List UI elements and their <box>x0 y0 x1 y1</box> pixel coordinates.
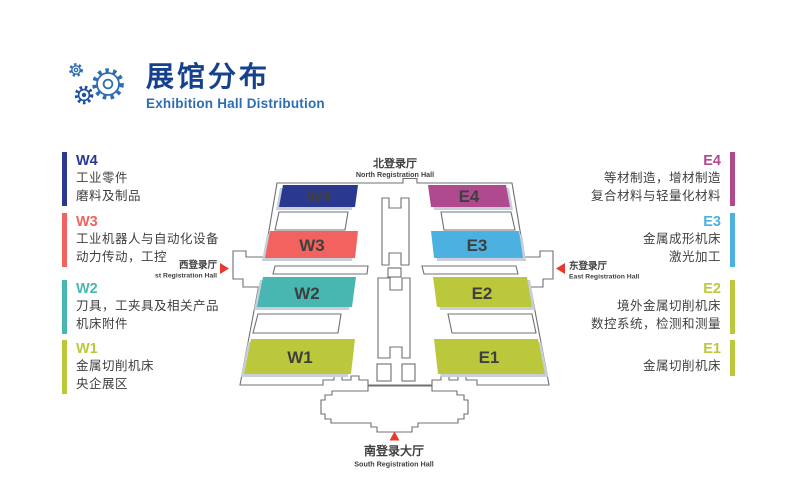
south-entrance-label-zh: 南登录大厅 <box>364 443 424 458</box>
legend-color-bar <box>62 280 67 334</box>
gear-small-icon <box>71 65 82 76</box>
south-pylon-east <box>402 364 415 381</box>
hall-label-w3: W3 <box>299 236 325 255</box>
legend-desc-line: 金属切削机床 <box>643 358 721 376</box>
gear-medium-icon <box>76 87 91 102</box>
hall-label-w4: W4 <box>306 187 332 206</box>
legend-color-bar <box>62 152 67 206</box>
hall-label-e3: E3 <box>467 236 488 255</box>
south-pylon-west <box>377 364 391 381</box>
unlabeled-hall <box>253 314 341 333</box>
legend-item-w4: W4 工业零件 磨料及制品 <box>62 152 141 206</box>
legend-desc-line: 金属切削机床 <box>76 358 154 376</box>
legend-desc-line: 金属成形机床 <box>643 231 721 249</box>
hall-label-e1: E1 <box>479 348 500 367</box>
north-entrance-label-zh: 北登录厅 <box>373 156 417 170</box>
east-entrance-label-zh: 东登录厅 <box>569 260 608 272</box>
page-header: 展馆分布 Exhibition Hall Distribution <box>146 60 325 111</box>
west-entrance-label-zh: 西登录厅 <box>179 259 218 271</box>
legend-desc-line: 磨料及制品 <box>76 188 141 206</box>
hall-label-w1: W1 <box>287 348 313 367</box>
hall-label-e2: E2 <box>472 284 493 303</box>
east-entrance-label-en: East Registration Hall <box>569 274 639 281</box>
page-subtitle: Exhibition Hall Distribution <box>146 96 325 111</box>
legend-code: E3 <box>703 213 721 231</box>
legend-desc-line: 工业零件 <box>76 170 141 188</box>
west-entrance-arrow-icon <box>220 263 229 274</box>
legend-item-e1: E1 金属切削机床 <box>643 340 735 376</box>
legend-color-bar <box>730 280 735 334</box>
unlabeled-hall <box>441 212 515 230</box>
legend-color-bar <box>730 152 735 206</box>
legend-item-e3: E3 金属成形机床 激光加工 <box>643 213 735 267</box>
east-entrance-arrow-icon <box>556 263 565 274</box>
north-entrance-label-en: North Registration Hall <box>356 170 434 179</box>
exhibition-floor-plan: W4 W3 W2 W1 E4 E3 E2 E1 北登录厅 North Regis… <box>155 150 650 472</box>
west-concourse <box>273 266 368 274</box>
legend-code: W4 <box>76 152 141 170</box>
legend-code: E1 <box>703 340 721 358</box>
page-title: 展馆分布 <box>146 60 325 94</box>
legend-item-w1: W1 金属切削机床 央企展区 <box>62 340 154 394</box>
gears-icon <box>62 56 136 120</box>
legend-color-bar <box>730 340 735 376</box>
legend-color-bar <box>62 340 67 394</box>
legend-color-bar <box>62 213 67 267</box>
legend-code: W1 <box>76 340 154 358</box>
gear-large-icon <box>95 71 122 98</box>
central-connector <box>388 268 401 277</box>
hall-label-w2: W2 <box>294 284 320 303</box>
unlabeled-hall <box>448 314 536 333</box>
east-concourse <box>422 266 518 274</box>
legend-code: E2 <box>703 280 721 298</box>
unlabeled-hall <box>275 212 348 230</box>
legend-desc-line: 央企展区 <box>76 376 154 394</box>
south-entrance-outline <box>321 386 468 432</box>
central-corridor-south <box>378 278 410 358</box>
legend-color-bar <box>730 213 735 267</box>
legend-code: E4 <box>703 152 721 170</box>
south-entrance-arrow-icon <box>390 432 400 441</box>
south-entrance-label-en: South Registration Hall <box>354 460 433 469</box>
west-entrance-label-en: West Registration Hall <box>155 273 217 280</box>
hall-label-e4: E4 <box>459 187 480 206</box>
legend-desc-line: 激光加工 <box>669 249 721 267</box>
